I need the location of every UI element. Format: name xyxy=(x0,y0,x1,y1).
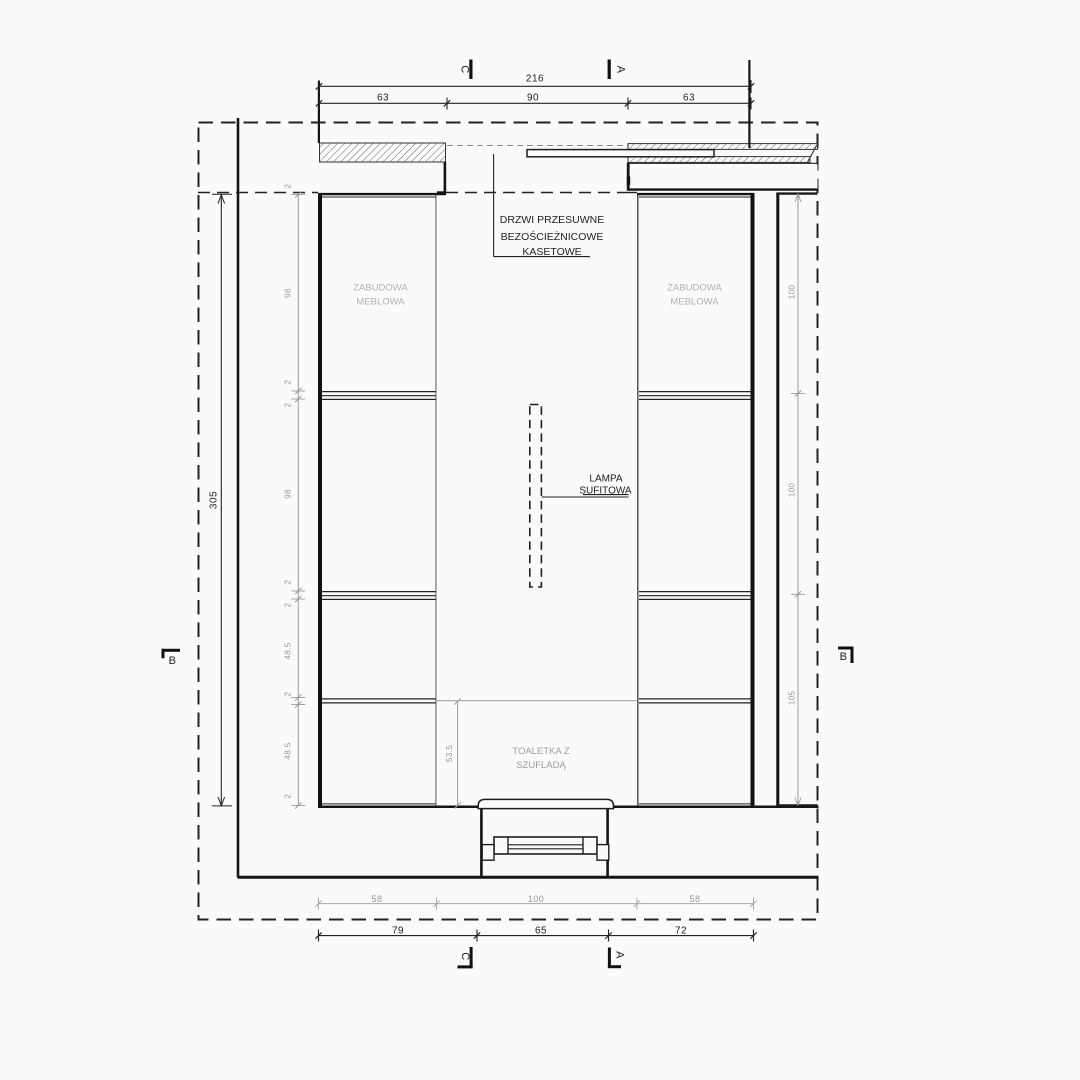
svg-text:KASETOWE: KASETOWE xyxy=(522,246,581,258)
svg-text:58: 58 xyxy=(371,894,382,904)
svg-text:48.5: 48.5 xyxy=(283,642,292,659)
svg-text:48.5: 48.5 xyxy=(283,742,292,759)
svg-text:2: 2 xyxy=(283,793,292,798)
svg-text:305: 305 xyxy=(209,491,220,509)
svg-text:98: 98 xyxy=(283,489,292,499)
svg-text:B: B xyxy=(169,655,177,667)
svg-text:2: 2 xyxy=(283,379,292,384)
svg-text:98: 98 xyxy=(283,288,292,298)
svg-text:DRZWI PRZESUWNE: DRZWI PRZESUWNE xyxy=(500,214,604,226)
svg-text:SZUFLADĄ: SZUFLADĄ xyxy=(516,760,566,771)
svg-text:58: 58 xyxy=(689,894,700,904)
svg-text:B: B xyxy=(840,651,848,663)
svg-text:SUFITOWA: SUFITOWA xyxy=(579,486,632,497)
svg-text:C: C xyxy=(459,65,471,73)
svg-text:BEZOŚCIEŻNICOWE: BEZOŚCIEŻNICOWE xyxy=(501,230,604,243)
svg-text:216: 216 xyxy=(526,74,544,85)
svg-text:ZABUDOWA: ZABUDOWA xyxy=(667,283,722,294)
svg-text:90: 90 xyxy=(527,92,539,103)
svg-text:79: 79 xyxy=(392,926,404,937)
svg-text:LAMPA: LAMPA xyxy=(589,474,622,485)
svg-text:A: A xyxy=(614,951,626,959)
svg-text:MEBLOWA: MEBLOWA xyxy=(356,297,405,308)
svg-text:2: 2 xyxy=(283,402,292,407)
svg-text:72: 72 xyxy=(675,926,687,937)
svg-text:C: C xyxy=(459,952,471,960)
svg-text:100: 100 xyxy=(788,285,797,300)
svg-text:2: 2 xyxy=(283,602,292,607)
svg-text:MEBLOWA: MEBLOWA xyxy=(670,297,719,308)
svg-text:ZABUDOWA: ZABUDOWA xyxy=(353,283,408,294)
svg-text:100: 100 xyxy=(528,894,545,904)
svg-text:63: 63 xyxy=(377,92,389,103)
svg-text:2: 2 xyxy=(283,691,292,696)
svg-text:105: 105 xyxy=(788,691,797,706)
svg-text:TOALETKA Z: TOALETKA Z xyxy=(512,746,570,757)
svg-text:2: 2 xyxy=(283,183,292,188)
svg-text:2: 2 xyxy=(283,579,292,584)
svg-text:65: 65 xyxy=(535,926,547,937)
svg-text:100: 100 xyxy=(788,483,797,498)
svg-text:A: A xyxy=(615,66,627,74)
svg-text:53.5: 53.5 xyxy=(445,745,454,762)
svg-text:63: 63 xyxy=(683,92,695,103)
